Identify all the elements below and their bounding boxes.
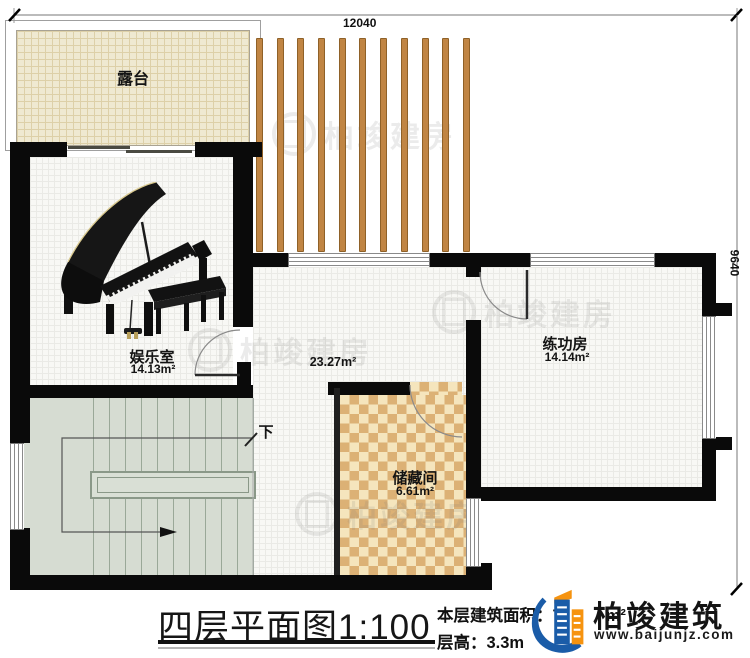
window (288, 253, 430, 267)
sliding-door (126, 150, 192, 153)
pergola-slat (401, 38, 408, 252)
floor-plan-canvas: 柏竣建房 柏竣建房 柏竣建房 柏竣建房 (0, 0, 750, 658)
dimension-right: 9640 (707, 256, 747, 296)
pergola-slat (318, 38, 325, 252)
wall (466, 320, 481, 498)
stair-stringer (90, 471, 256, 499)
window (530, 253, 655, 267)
stair-stringer-rail (97, 477, 249, 493)
pergola-slat (463, 38, 470, 252)
wall (10, 142, 67, 157)
wall (428, 253, 530, 267)
pergola-slats (256, 38, 470, 252)
dimension-top: 12040 (343, 16, 376, 30)
storage-room-area: 6.61m² (396, 484, 434, 498)
practice-room-floor (481, 267, 702, 487)
brand-logo-icon (527, 586, 597, 656)
window (466, 498, 481, 567)
pergola-slat (380, 38, 387, 252)
pergola-slat (339, 38, 346, 252)
title-underline-thin (158, 647, 435, 649)
practice-room-area: 14.14m² (545, 350, 590, 364)
wall (466, 487, 716, 501)
title-underline (158, 640, 435, 644)
window (702, 316, 716, 439)
wall (328, 382, 410, 395)
brand-website: www.baijunjz.com (594, 627, 735, 642)
entertainment-room-area: 14.13m² (131, 362, 176, 376)
wall (716, 437, 732, 450)
pergola-slat (442, 38, 449, 252)
stair-treads-lower (93, 498, 254, 575)
wall (10, 142, 30, 443)
stair-treads-upper (93, 398, 254, 473)
floor-height-line: 层高：3.3m (437, 629, 524, 653)
wall (30, 385, 253, 398)
wall (716, 303, 732, 316)
window (10, 443, 24, 530)
pergola-slat (297, 38, 304, 252)
grand-piano (44, 182, 234, 342)
pergola-slat (359, 38, 366, 252)
wall (466, 267, 481, 277)
wall (233, 145, 253, 327)
pergola-slat (277, 38, 284, 252)
wall (466, 563, 492, 590)
wall (334, 388, 340, 577)
dimension-right-value: 9640 (727, 250, 741, 277)
wall (240, 253, 288, 267)
hall-area: 23.27m² (310, 355, 357, 369)
sliding-door (68, 146, 130, 149)
storage-door-threshold (410, 382, 462, 395)
pergola-slat (422, 38, 429, 252)
terrace-label: 露台 (117, 65, 149, 89)
wall (10, 575, 492, 590)
stairs-down-label: 下 (258, 421, 273, 442)
